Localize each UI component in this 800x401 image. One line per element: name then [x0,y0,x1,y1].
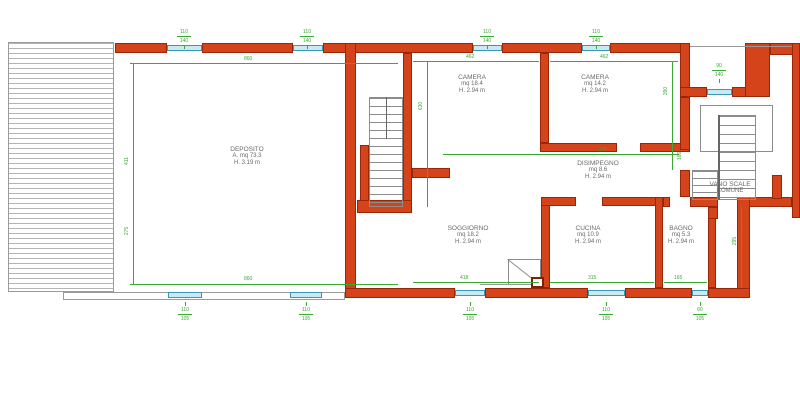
window-dim: 110 140 [480,29,494,49]
window-dim: 110 105 [178,302,192,322]
wall-top-5 [610,43,690,53]
floor-plan: 860 860 411 275 462 462 630 390 274 166 … [0,0,800,401]
room-label-camera-2: CAMERA mq 14.2 H. 2.94 m [550,74,640,95]
window-dim-height: 140 [589,37,603,44]
dim-line [443,154,679,155]
wall-bottom-2 [485,288,588,298]
room-name: DEPOSITO [202,146,292,153]
dim-label-camera2-height: 390 [663,84,669,98]
window-dim-width: 110 [589,29,603,37]
wall-right [792,43,800,218]
wall-deposito-right [345,43,356,298]
wall-top-4 [502,43,582,53]
room-label-soggiorno: SOGGIORNO mq 18.2 H. 2.94 m [423,225,513,246]
window-dim-width: 110 [463,307,477,315]
wall-east-a [680,97,690,150]
window-dim-height: 105 [693,315,707,322]
window-dim-width: 110 [299,307,313,315]
window-dim-height: 140 [177,37,191,44]
dim-label-camera1-height: 630 [418,99,424,113]
dim-line [664,282,707,283]
window-dim: 90 140 [712,63,726,83]
room-area: mq 18.2 [423,232,513,239]
window-dim-width: 60 [693,307,707,315]
window [692,290,708,296]
wall-top-1 [115,43,167,53]
window-dim: 110 105 [299,302,313,322]
room-area: mq 14.2 [550,81,640,88]
wall-recess-left [680,87,707,97]
wall-cucina-top-a [541,197,576,206]
room-height: H. 3.19 m [202,160,292,167]
window-dim-height: 105 [599,315,613,322]
dim-label-hall-width: 274 [598,147,606,153]
wall-cucina-top-b [602,197,663,206]
room-area: A. mq 73.3 [202,153,292,160]
dim-label-deposito-height-lower: 275 [124,224,130,238]
window-dim: 110 140 [589,29,603,49]
room-area: mq 18.4 [427,81,517,88]
window-dim-height: 105 [178,315,192,322]
wall-door-stub [708,207,718,219]
room-label-camera-1: CAMERA mq 18.4 H. 2.94 m [427,74,517,95]
ramp-hatch [8,42,114,292]
window-dim-width: 110 [599,307,613,315]
wall-top-2 [202,43,293,53]
room-height: H. 2.94 m [427,88,517,95]
window-dim-width: 110 [480,29,494,37]
window [168,292,202,298]
window-dim-height: 105 [463,315,477,322]
window-dim-height: 140 [712,71,726,78]
dim-label-cucina-width: 315 [588,275,596,281]
window-dim: 60 105 [693,302,707,322]
wall-stairs-right [403,53,412,213]
dim-label-hall-right: 166 [677,149,683,163]
wall-pier [745,43,770,97]
room-name: DISIMPEGNO [553,160,643,167]
dim-line [413,61,539,62]
room-height: H. 2.94 m [636,239,726,246]
wall-bottom-1 [345,288,455,298]
window-dim-width: 110 [178,307,192,315]
window-dim-width: 110 [177,29,191,37]
dim-label-camera2-width: 462 [600,54,608,60]
wall-chase [737,197,750,298]
room-height: H. 2.94 m [423,239,513,246]
dim-line [550,61,678,62]
room-label-deposito: DEPOSITO A. mq 73.3 H. 3.19 m [202,146,292,167]
dim-label-bagno-right: 295 [732,234,738,248]
window-dim: 110 140 [300,29,314,49]
dim-label-bagno-width: 165 [674,275,682,281]
window-dim-height: 140 [480,37,494,44]
dim-label-deposito-height-upper: 411 [124,154,130,168]
window-dim: 110 140 [177,29,191,49]
window-dim: 110 105 [463,302,477,322]
wall-stairs-left [360,145,369,207]
window-dim: 110 105 [599,302,613,322]
room-height: H. 2.94 m [543,239,633,246]
wall-camera-divider [540,53,549,143]
wall-bottom-3 [625,288,692,298]
window-dim-height: 105 [299,315,313,322]
wall-bottom-4 [708,288,750,298]
window [588,290,625,296]
window [455,290,485,296]
room-name: SOGGIORNO [423,225,513,232]
wall-soggiorno-stub [412,168,450,178]
room-name: VANO SCALE [685,181,775,188]
dim-label-camera1-width: 462 [466,54,474,60]
room-area: mq 10.9 [543,232,633,239]
room-height: H. 2.94 m [553,174,643,181]
room-area: mq 8.6 [553,167,643,174]
wall-ne-corner [680,43,690,89]
dim-line [130,284,398,285]
room-name: CUCINA [543,225,633,232]
window-dim-height: 140 [300,37,314,44]
staircase-divider [386,97,387,139]
room-label-vano-scale: VANO SCALE COMUNE [685,181,775,195]
dim-line [133,63,134,284]
dim-label-soggiorno-width: 418 [460,275,468,281]
dim-label-deposito-width-top: 860 [244,56,252,62]
room-area: COMUNE [685,188,775,195]
dim-line [413,282,539,283]
room-height: H. 2.94 m [550,88,640,95]
window [290,292,322,298]
eaves-line [690,46,792,47]
window-dim-width: 90 [712,63,726,71]
room-name: CAMERA [550,74,640,81]
window-dim-width: 110 [300,29,314,37]
room-label-disimpegno: DISIMPEGNO mq 8.6 H. 2.94 m [553,160,643,181]
room-name: BAGNO [636,225,726,232]
dim-line [741,207,742,288]
room-area: mq 5.3 [636,232,726,239]
window-stairwell [707,89,732,95]
room-name: CAMERA [427,74,517,81]
dim-line [130,63,398,64]
dim-label-deposito-width-bottom: 860 [244,276,252,282]
room-label-cucina: CUCINA mq 10.9 H. 2.94 m [543,225,633,246]
room-label-bagno: BAGNO mq 5.3 H. 2.94 m [636,225,726,246]
dim-line [550,282,654,283]
wall-bagno-top-stub [663,197,670,207]
